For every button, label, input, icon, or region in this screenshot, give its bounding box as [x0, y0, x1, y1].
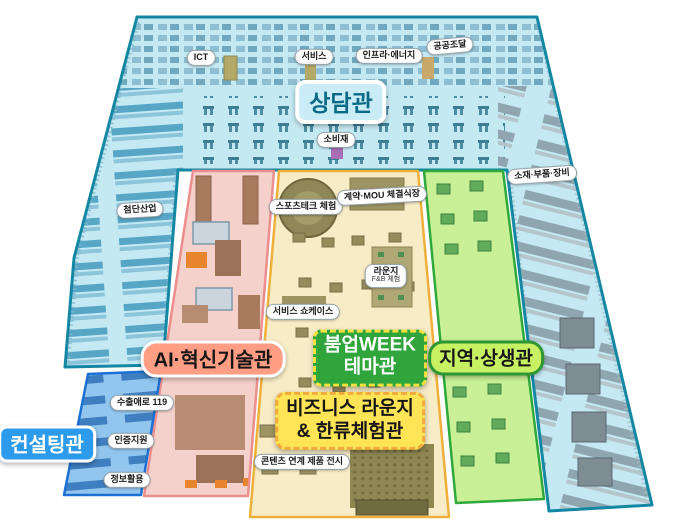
zone-label-counseling: 상담관 [295, 80, 386, 124]
business-label-line2: & 한류체험관 [286, 420, 414, 443]
area-pill-advanced-industry: 첨단산업 [116, 201, 164, 220]
area-pill-infra-energy: 인프라·에너지 [356, 48, 423, 64]
business-label-line1: 비즈니스 라운지 [286, 397, 414, 420]
area-pill-contents-exhibit: 콘텐츠 연계 제품 전시 [254, 454, 350, 470]
lounge-sub-label: F&B 체험 [372, 276, 400, 285]
theme-label-line2: 테마관 [324, 357, 416, 379]
area-pill-consumer-goods: 소비재 [317, 132, 356, 148]
area-pill-certification-support: 인증지원 [107, 433, 154, 449]
theme-label-line1: 붐업WEEK [324, 335, 416, 357]
area-pill-service: 서비스 [295, 49, 334, 65]
area-pill-ict: ICT [187, 50, 216, 66]
lounge-main-label: 라운지 [374, 266, 399, 276]
exhibition-floor-plan: ICT 서비스 인프라·에너지 공공조달 소비재 소재·부품·장비 첨단산업 스… [0, 0, 680, 527]
area-pill-export-help-119: 수출애로 119 [110, 395, 174, 411]
area-pill-lounge: 라운지 F&B 체험 [365, 264, 407, 288]
zone-label-boomup-week-theme: 붐업WEEK 테마관 [313, 330, 427, 387]
area-pill-information-use: 정보활용 [103, 472, 150, 488]
area-pill-service-showcase: 서비스 쇼케이스 [266, 304, 340, 320]
zone-label-consulting: 컨설팅관 [0, 426, 96, 463]
zone-label-region-coexistence: 지역·상생관 [428, 341, 544, 376]
zone-label-ai-innovation: AI·혁신기술관 [141, 341, 286, 378]
zone-label-business-lounge-hallyu: 비즈니스 라운지 & 한류체험관 [275, 392, 425, 450]
area-pill-sports-tech: 스포츠테크 체험 [269, 199, 343, 215]
